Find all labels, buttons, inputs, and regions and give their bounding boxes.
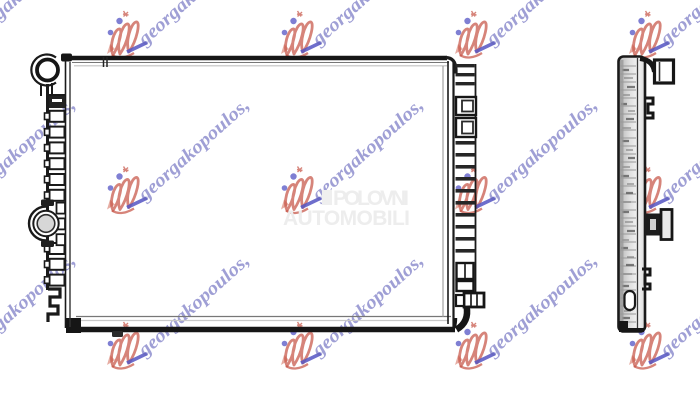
svg-text:AUTOMOBILI: AUTOMOBILI [283, 207, 410, 230]
